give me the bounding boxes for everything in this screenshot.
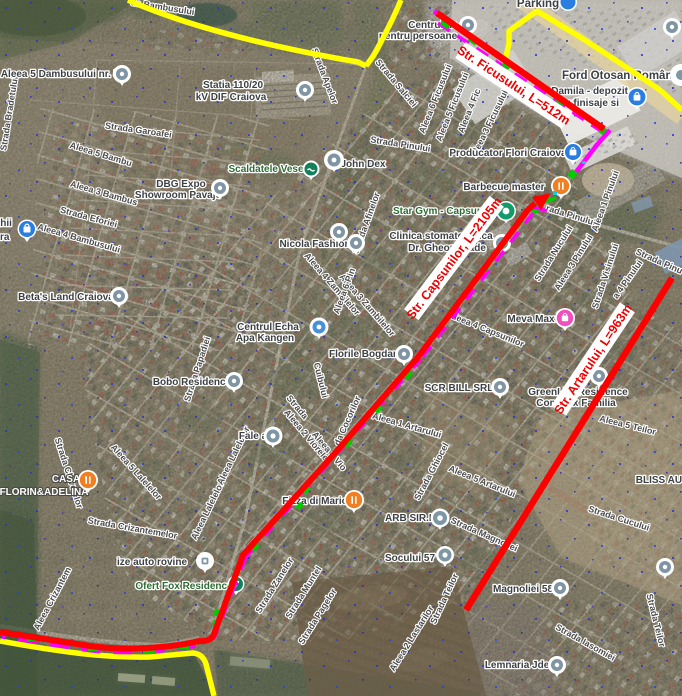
svg-text:kV DIF Craiova: kV DIF Craiova — [196, 92, 267, 103]
svg-text:Showroom Pavaje: Showroom Pavaje — [135, 190, 222, 201]
svg-text:Bobo Residence: Bobo Residence — [153, 377, 232, 388]
svg-text:Meva Max: Meva Max — [507, 314, 555, 325]
svg-text:Ford Otosan România: Ford Otosan România — [562, 70, 682, 82]
svg-text:Aleea 5 Dambusului nr. 5: Aleea 5 Dambusului nr. 5 — [1, 69, 120, 80]
svg-text:Magnoliei 58: Magnoliei 58 — [493, 584, 553, 595]
svg-text:Beta's Land Craiova: Beta's Land Craiova — [18, 292, 114, 303]
svg-text:FLORIN&ADELINA: FLORIN&ADELINA — [0, 487, 88, 498]
svg-text:Barbecue master: Barbecue master — [463, 182, 544, 193]
svg-text:Socului 57: Socului 57 — [385, 553, 435, 564]
svg-text:DBG Expo: DBG Expo — [156, 179, 205, 190]
svg-text:Centrul Echa: Centrul Echa — [237, 322, 299, 333]
svg-text:pentru persoane: pentru persoane — [379, 31, 458, 42]
svg-text:tura: tura — [0, 232, 10, 243]
svg-text:Fale a: Fale a — [239, 431, 268, 442]
svg-text:nghii: nghii — [0, 218, 12, 229]
svg-text:Star Gym - Capsun: Star Gym - Capsun — [393, 206, 483, 217]
svg-text:Damila - depozit,: Damila - depozit, — [551, 86, 631, 97]
svg-text:Scaldatele Vese: Scaldatele Vese — [228, 164, 303, 175]
svg-text:BLISS AUT: BLISS AUT — [636, 475, 682, 486]
svg-text:Statia 110/20: Statia 110/20 — [203, 80, 263, 91]
svg-text:Florile Bogdan: Florile Bogdan — [329, 349, 399, 360]
svg-text:SCR BILL SRL: SCR BILL SRL — [425, 383, 494, 394]
svg-text:Apa Kangen: Apa Kangen — [236, 333, 294, 344]
svg-text:Lemnaria Jder: Lemnaria Jder — [485, 660, 553, 671]
svg-text:ize auto rovine: ize auto rovine — [117, 557, 187, 568]
svg-text:CASA: CASA — [52, 474, 80, 485]
svg-text:ARB SIR.L: ARB SIR.L — [385, 513, 435, 524]
svg-text:Producator Flori Craiova: Producator Flori Craiova — [449, 148, 567, 159]
svg-text:Ofert Fox Residence: Ofert Fox Residence — [135, 581, 233, 592]
svg-text:John Dex: John Dex — [340, 159, 385, 170]
